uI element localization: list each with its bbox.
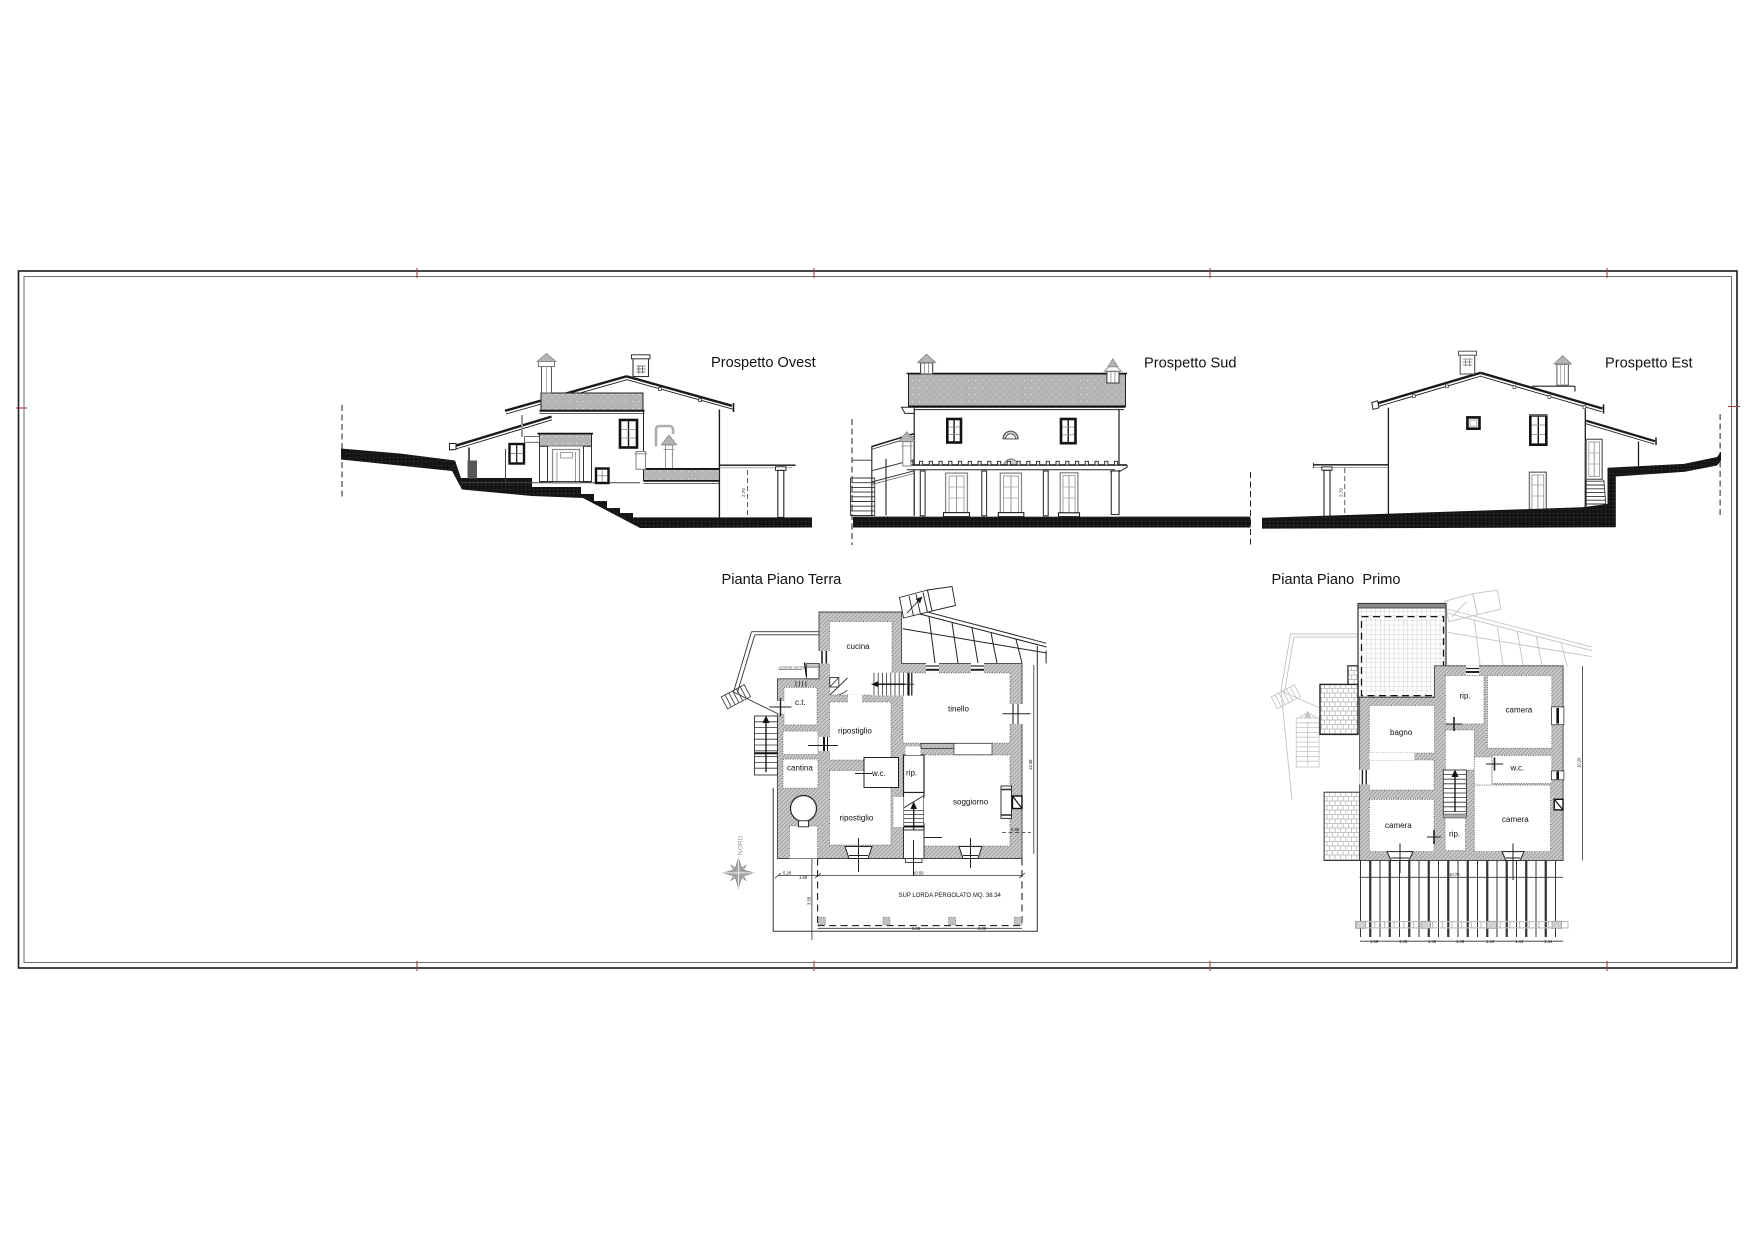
svg-text:ripostiglio: ripostiglio [840,814,874,823]
svg-text:bagno: bagno [1390,728,1413,737]
svg-text:Prospetto Sud: Prospetto Sud [1144,356,1237,372]
svg-text:NORD: NORD [737,836,744,855]
svg-text:w.c.: w.c. [871,769,886,778]
svg-text:cucina: cucina [847,642,871,651]
svg-text:camera: camera [1385,821,1412,830]
svg-text:centrale termica: centrale termica [779,664,808,669]
svg-text:Pianta Piano Primo: Pianta Piano Primo [1272,572,1401,588]
svg-text:1.46: 1.46 [1456,939,1465,944]
svg-text:w.c.: w.c. [1510,763,1525,772]
svg-text:13.38: 13.38 [1028,759,1033,770]
svg-text:rip.: rip. [906,768,917,777]
svg-text:1.44: 1.44 [1515,939,1524,944]
svg-text:cantina: cantina [787,763,813,772]
svg-text:rip.: rip. [1460,692,1471,701]
svg-text:tinello: tinello [948,705,969,714]
svg-text:3.09: 3.09 [978,926,987,931]
svg-text:ripostiglio: ripostiglio [838,726,872,735]
svg-text:1.46: 1.46 [1428,939,1437,944]
svg-text:2.70: 2.70 [741,488,746,497]
svg-text:10.50: 10.50 [913,870,924,875]
svg-text:Prospetto Est: Prospetto Est [1605,356,1693,372]
svg-text:rip.: rip. [1449,830,1460,839]
svg-text:10.20: 10.20 [1577,757,1582,768]
svg-text:10.70: 10.70 [1449,872,1460,877]
svg-text:5.28: 5.28 [783,870,792,875]
svg-text:2.70: 2.70 [1339,488,1344,497]
svg-text:3.08: 3.08 [912,926,921,931]
svg-text:3.58: 3.58 [806,896,811,905]
svg-text:camera: camera [1506,705,1533,714]
svg-text:1.50: 1.50 [799,875,808,880]
svg-text:c.t.: c.t. [795,698,806,707]
svg-text:1.44: 1.44 [1486,939,1495,944]
svg-text:camera: camera [1502,815,1529,824]
svg-text:0.85: 0.85 [1011,827,1020,832]
svg-text:soggiorno: soggiorno [953,798,989,807]
svg-text:1.44: 1.44 [1544,939,1553,944]
svg-text:1.46: 1.46 [1399,939,1408,944]
svg-text:Pianta Piano Terra: Pianta Piano Terra [722,572,843,588]
svg-text:Prospetto Ovest: Prospetto Ovest [711,355,816,371]
svg-text:SUP LORDA PERGOLATO MQ. 38.34: SUP LORDA PERGOLATO MQ. 38.34 [899,893,1002,899]
svg-text:1.46: 1.46 [1370,939,1379,944]
